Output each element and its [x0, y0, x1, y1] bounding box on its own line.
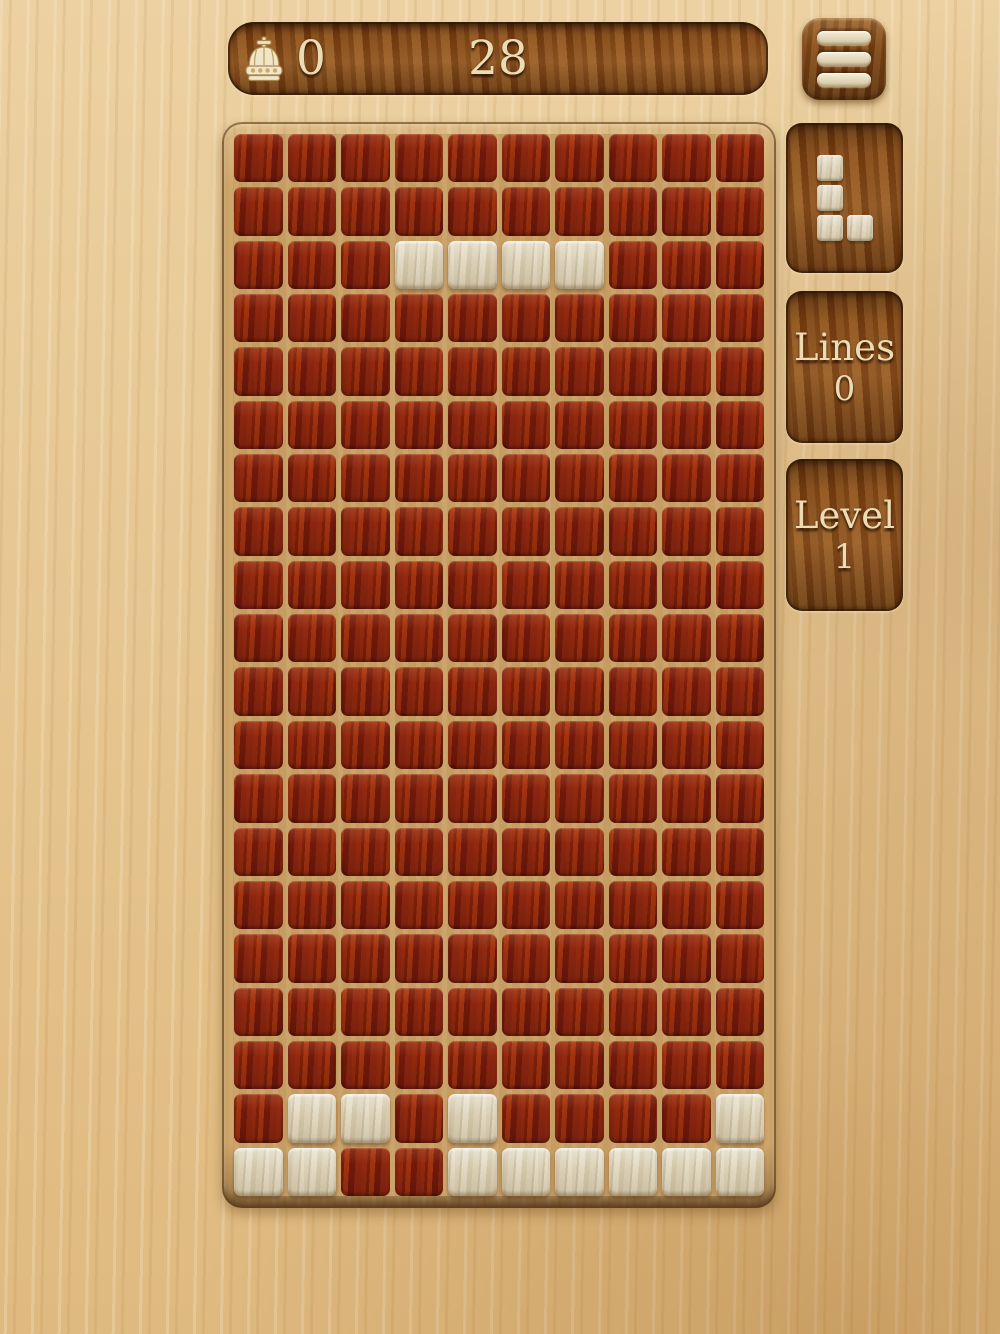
- board-cell: [502, 401, 551, 449]
- next-piece-block: [817, 155, 843, 181]
- next-piece-panel: [786, 123, 903, 273]
- board-cell: [234, 614, 283, 662]
- board-cell: [448, 667, 497, 715]
- board-cell: [288, 667, 337, 715]
- board-cell: [395, 988, 444, 1036]
- board-cell: [555, 454, 604, 502]
- board-cell: [662, 721, 711, 769]
- board-cell: [555, 241, 604, 289]
- board-cell: [341, 241, 390, 289]
- board-cell: [448, 1041, 497, 1089]
- board-cell: [662, 134, 711, 182]
- board-cell: [716, 347, 765, 395]
- board-cell: [609, 614, 658, 662]
- board-cell: [502, 347, 551, 395]
- board-cell: [555, 828, 604, 876]
- board-cell: [609, 721, 658, 769]
- board-cell: [609, 401, 658, 449]
- board-cell: [502, 1148, 551, 1196]
- board-cell: [716, 454, 765, 502]
- menu-button[interactable]: [802, 18, 886, 100]
- board-grid[interactable]: [234, 134, 764, 1196]
- board-cell: [662, 241, 711, 289]
- board-cell: [662, 774, 711, 822]
- board-cell: [288, 881, 337, 929]
- board-cell: [502, 1094, 551, 1142]
- board-cell: [288, 561, 337, 609]
- board-cell: [341, 134, 390, 182]
- board-cell: [341, 988, 390, 1036]
- board-cell: [395, 774, 444, 822]
- board-cell: [502, 721, 551, 769]
- board-cell: [288, 934, 337, 982]
- board-cell: [555, 347, 604, 395]
- board-cell: [502, 294, 551, 342]
- board-cell: [288, 401, 337, 449]
- board-cell: [341, 454, 390, 502]
- board-cell: [609, 881, 658, 929]
- board-cell: [341, 187, 390, 235]
- board-cell: [502, 881, 551, 929]
- board-cell: [609, 828, 658, 876]
- board-cell: [448, 881, 497, 929]
- next-piece-block: [817, 215, 843, 241]
- board-cell: [555, 934, 604, 982]
- board-cell: [395, 454, 444, 502]
- board-cell: [395, 507, 444, 555]
- board-cell: [288, 774, 337, 822]
- board-cell: [716, 1148, 765, 1196]
- board-cell: [448, 774, 497, 822]
- board-cell: [716, 774, 765, 822]
- board-cell: [395, 614, 444, 662]
- board-cell: [395, 721, 444, 769]
- board-cell: [341, 881, 390, 929]
- board-cell: [288, 1041, 337, 1089]
- board-cell: [234, 401, 283, 449]
- board-cell: [234, 1148, 283, 1196]
- board-cell: [555, 614, 604, 662]
- board-cell: [555, 294, 604, 342]
- board-cell: [234, 187, 283, 235]
- board-cell: [288, 454, 337, 502]
- board-cell: [716, 241, 765, 289]
- current-score-value: 28: [228, 35, 768, 82]
- board-cell: [609, 1094, 658, 1142]
- board-cell: [716, 1041, 765, 1089]
- board-cell: [555, 134, 604, 182]
- score-bar: 0 28: [228, 22, 768, 95]
- board-cell: [341, 721, 390, 769]
- board-cell: [448, 134, 497, 182]
- board-cell: [555, 1041, 604, 1089]
- next-piece-block: [847, 215, 873, 241]
- board-cell: [662, 561, 711, 609]
- board-cell: [662, 294, 711, 342]
- board-cell: [395, 828, 444, 876]
- board-cell: [609, 1041, 658, 1089]
- board-cell: [395, 241, 444, 289]
- board-cell: [234, 294, 283, 342]
- board-cell: [555, 1094, 604, 1142]
- board-frame: [222, 122, 776, 1208]
- board-cell: [395, 881, 444, 929]
- board-cell: [609, 507, 658, 555]
- board-cell: [609, 774, 658, 822]
- board-cell: [502, 507, 551, 555]
- board-cell: [555, 667, 604, 715]
- board-cell: [502, 774, 551, 822]
- board-cell: [288, 721, 337, 769]
- board-cell: [716, 507, 765, 555]
- hamburger-menu-icon: [817, 52, 871, 66]
- board-cell: [395, 1094, 444, 1142]
- board-cell: [234, 774, 283, 822]
- board-cell: [609, 454, 658, 502]
- board-cell: [395, 187, 444, 235]
- board-cell: [609, 347, 658, 395]
- board-cell: [609, 561, 658, 609]
- board-cell: [448, 1094, 497, 1142]
- board-cell: [662, 667, 711, 715]
- board-cell: [502, 667, 551, 715]
- board-cell: [395, 934, 444, 982]
- board-cell: [502, 187, 551, 235]
- board-cell: [502, 134, 551, 182]
- board-cell: [341, 1041, 390, 1089]
- board-cell: [448, 454, 497, 502]
- board-cell: [448, 934, 497, 982]
- board-cell: [288, 1148, 337, 1196]
- board-cell: [502, 988, 551, 1036]
- board-cell: [609, 988, 658, 1036]
- board-cell: [395, 347, 444, 395]
- board-cell: [448, 294, 497, 342]
- board-cell: [448, 1148, 497, 1196]
- level-label: Level: [794, 497, 895, 534]
- board-cell: [662, 1148, 711, 1196]
- board-cell: [341, 614, 390, 662]
- board-cell: [395, 1148, 444, 1196]
- lines-label: Lines: [794, 329, 895, 366]
- board-cell: [609, 667, 658, 715]
- board-cell: [341, 294, 390, 342]
- board-cell: [502, 241, 551, 289]
- board-cell: [716, 401, 765, 449]
- board-cell: [662, 881, 711, 929]
- board-cell: [555, 774, 604, 822]
- board-cell: [716, 988, 765, 1036]
- level-value: 1: [834, 540, 856, 574]
- board-cell: [609, 294, 658, 342]
- board-cell: [234, 828, 283, 876]
- board-cell: [288, 1094, 337, 1142]
- board-cell: [716, 1094, 765, 1142]
- board-cell: [234, 454, 283, 502]
- board-cell: [234, 134, 283, 182]
- lines-panel: Lines 0: [786, 291, 903, 443]
- board-cell: [662, 507, 711, 555]
- board-cell: [341, 1094, 390, 1142]
- board-cell: [288, 347, 337, 395]
- board-cell: [395, 561, 444, 609]
- board-cell: [288, 507, 337, 555]
- board-cell: [234, 241, 283, 289]
- next-piece-block: [817, 185, 843, 211]
- board-cell: [555, 187, 604, 235]
- board-cell: [234, 507, 283, 555]
- board-cell: [555, 881, 604, 929]
- board-cell: [341, 774, 390, 822]
- board-cell: [341, 828, 390, 876]
- board-cell: [341, 561, 390, 609]
- board-cell: [555, 401, 604, 449]
- board-cell: [448, 241, 497, 289]
- board-cell: [448, 721, 497, 769]
- board-cell: [716, 828, 765, 876]
- board-cell: [448, 614, 497, 662]
- board-cell: [555, 721, 604, 769]
- board-cell: [234, 1041, 283, 1089]
- board-cell: [716, 667, 765, 715]
- board-cell: [234, 988, 283, 1036]
- board-cell: [395, 294, 444, 342]
- board-cell: [662, 187, 711, 235]
- board-cell: [502, 561, 551, 609]
- board-cell: [716, 294, 765, 342]
- board-cell: [502, 614, 551, 662]
- board-cell: [555, 561, 604, 609]
- board-cell: [662, 454, 711, 502]
- board-cell: [502, 454, 551, 502]
- lines-value: 0: [834, 372, 856, 406]
- board-cell: [716, 721, 765, 769]
- board-cell: [395, 667, 444, 715]
- board-cell: [395, 401, 444, 449]
- board-cell: [341, 934, 390, 982]
- board-cell: [662, 614, 711, 662]
- board-cell: [555, 1148, 604, 1196]
- board-cell: [662, 828, 711, 876]
- board-cell: [234, 881, 283, 929]
- board-cell: [341, 401, 390, 449]
- board-cell: [234, 667, 283, 715]
- board-cell: [341, 507, 390, 555]
- level-panel: Level 1: [786, 459, 903, 611]
- board-cell: [662, 347, 711, 395]
- board-cell: [502, 934, 551, 982]
- board-cell: [234, 721, 283, 769]
- board-cell: [448, 507, 497, 555]
- board-cell: [716, 134, 765, 182]
- board-cell: [234, 561, 283, 609]
- board-cell: [716, 614, 765, 662]
- board-cell: [609, 1148, 658, 1196]
- board-cell: [448, 401, 497, 449]
- board-cell: [609, 241, 658, 289]
- board-cell: [609, 934, 658, 982]
- game-screen: 0 28 Lines 0 Level 1: [0, 0, 1000, 1334]
- board-cell: [341, 347, 390, 395]
- hamburger-menu-icon: [817, 73, 871, 87]
- board-cell: [234, 1094, 283, 1142]
- board-cell: [288, 134, 337, 182]
- board-cell: [662, 1041, 711, 1089]
- board-cell: [716, 187, 765, 235]
- board-cell: [234, 347, 283, 395]
- board-cell: [395, 134, 444, 182]
- board-cell: [288, 241, 337, 289]
- board-cell: [662, 1094, 711, 1142]
- board-cell: [609, 187, 658, 235]
- board-cell: [609, 134, 658, 182]
- board-cell: [555, 988, 604, 1036]
- board-cell: [288, 988, 337, 1036]
- hamburger-menu-icon: [817, 31, 871, 45]
- board-cell: [448, 187, 497, 235]
- board-cell: [502, 828, 551, 876]
- board-cell: [234, 934, 283, 982]
- board-cell: [716, 561, 765, 609]
- board-cell: [341, 667, 390, 715]
- board-cell: [395, 1041, 444, 1089]
- board-cell: [448, 347, 497, 395]
- board-cell: [716, 881, 765, 929]
- next-piece-preview: [817, 155, 873, 241]
- board-cell: [448, 561, 497, 609]
- board-cell: [288, 294, 337, 342]
- board-cell: [716, 934, 765, 982]
- board-cell: [662, 934, 711, 982]
- board-cell: [288, 187, 337, 235]
- board-cell: [341, 1148, 390, 1196]
- board-cell: [448, 988, 497, 1036]
- board-cell: [662, 401, 711, 449]
- board-cell: [502, 1041, 551, 1089]
- board-cell: [662, 988, 711, 1036]
- board-cell: [555, 507, 604, 555]
- board-cell: [288, 828, 337, 876]
- board-cell: [448, 828, 497, 876]
- board-cell: [288, 614, 337, 662]
